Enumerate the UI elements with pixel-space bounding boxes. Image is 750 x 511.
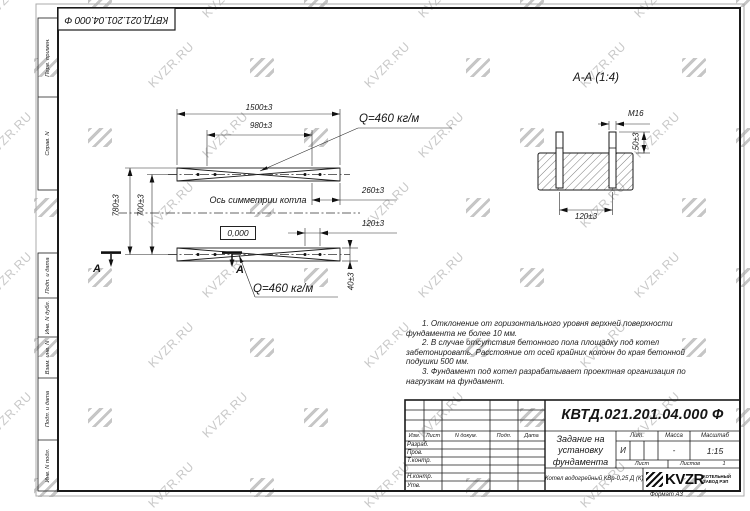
product-name: Котел водогрейный КВр-0,25 Д (К) bbox=[545, 476, 643, 482]
title-line-3: фундамента bbox=[545, 457, 616, 468]
section-dim-50: 50±3 bbox=[633, 125, 642, 157]
symmetry-axis-label: Ось симметрии котла bbox=[205, 196, 311, 206]
margin-label-podp-data-2: Подп. и дата bbox=[38, 378, 58, 440]
margin-label-vzam-inv: Взам. инв. N bbox=[38, 337, 58, 378]
load-label-top: Q=460 кг/м bbox=[359, 113, 455, 126]
scale-value: 1:15 bbox=[690, 446, 740, 456]
col-header-list: Лист bbox=[424, 433, 442, 439]
note-line-3: 2. В случае отсутствия бетонного пола пл… bbox=[422, 338, 659, 347]
note-line-4: забетонировать. Расстояние от осей крайн… bbox=[406, 348, 685, 357]
kvzr-logo-sub2: ЗАВОД РЭП bbox=[703, 479, 739, 484]
plan-view-rails bbox=[177, 168, 340, 261]
center-lines bbox=[118, 175, 360, 255]
col-header-podp: Подп. bbox=[490, 433, 518, 439]
kvzr-logo-text: KVZR bbox=[665, 471, 704, 488]
dim-700: 700±3 bbox=[138, 187, 147, 223]
col-header-ndoc: N докум. bbox=[442, 433, 490, 439]
format-note: Формат А3 bbox=[650, 492, 683, 498]
section-dim-120: 120±3 bbox=[566, 213, 606, 222]
dim-120: 120±3 bbox=[352, 220, 394, 229]
margin-label-podp-data-1: Подп. и дата bbox=[38, 253, 58, 298]
title-line-2: установку bbox=[545, 445, 616, 456]
massa-header: Масса bbox=[658, 433, 690, 439]
kvzr-logo-icon bbox=[646, 472, 663, 487]
load-label-bottom: Q=460 кг/м bbox=[253, 283, 349, 296]
listov-label: Листов bbox=[668, 461, 712, 467]
list-label: Лист bbox=[616, 461, 668, 467]
scale-header: Масштаб bbox=[690, 433, 740, 439]
title-line-1: Задание на bbox=[545, 434, 616, 445]
title-block-title: Задание на установку фундамента bbox=[545, 434, 616, 468]
elevation-mark: 0,000 bbox=[220, 226, 256, 240]
anchor-bolt-dots bbox=[197, 173, 322, 256]
anchor-bolt-right bbox=[609, 132, 616, 188]
col-header-data: Дата bbox=[518, 433, 545, 439]
row-label-nkontr: Н.контр. bbox=[407, 474, 432, 480]
top-doc-number: КВТД.021.201.04.000 Ф bbox=[58, 8, 175, 30]
row-label-tkontr: Т.контр. bbox=[407, 458, 431, 464]
lit-value: И bbox=[616, 446, 630, 455]
massa-value: - bbox=[658, 446, 690, 455]
dim-1500: 1500±3 bbox=[222, 104, 296, 113]
drawing-sheet: KVZR.RUKVZR.RUKVZR.RUKVZR.RUKVZR.RUKVZR.… bbox=[0, 0, 750, 500]
section-letter-left: А bbox=[93, 263, 109, 275]
dim-780: 780±3 bbox=[113, 187, 122, 223]
thread-label-m16: М16 bbox=[628, 110, 654, 119]
margin-label-inv-podl: Инв. N подл. bbox=[38, 440, 58, 491]
kvzr-logo-subtext: КОТЕЛЬНЫЙ ЗАВОД РЭП bbox=[703, 474, 739, 485]
lit-header: Лит. bbox=[616, 433, 658, 439]
section-view bbox=[538, 132, 633, 190]
section-letter-right: А bbox=[236, 264, 252, 276]
note-line-7: нагрузкам на фундамент. bbox=[406, 377, 505, 386]
title-block-number: КВТД.021.201.04.000 Ф bbox=[545, 400, 740, 431]
section-title: А-А (1:4) bbox=[552, 72, 640, 85]
margin-label-sprav-n: Справ. N bbox=[38, 97, 58, 190]
note-line-5: подушки 500 мм. bbox=[406, 357, 469, 366]
listov-value: 1 bbox=[712, 461, 736, 467]
anchor-bolt-left bbox=[556, 132, 563, 188]
row-label-utv: Утв. bbox=[407, 483, 421, 489]
note-line-1: 1. Отклонение от горизонтального уровня … bbox=[422, 319, 673, 328]
margin-label-inv-dubl: Инв. N дубл. bbox=[38, 298, 58, 337]
dim-260: 260±3 bbox=[352, 187, 394, 196]
margin-label-perv-primen: Перв. примен. bbox=[38, 18, 58, 97]
row-label-prov: Пров. bbox=[407, 450, 423, 456]
row-label-razrab: Разраб. bbox=[407, 442, 429, 448]
concrete-pad bbox=[538, 153, 633, 190]
note-line-2: фундамента не более 10 мм. bbox=[406, 329, 517, 338]
dim-980: 980±3 bbox=[237, 122, 285, 131]
note-line-6: 3. Фундамент под котел разрабатывает про… bbox=[422, 367, 686, 376]
col-header-izm: Изм. bbox=[405, 433, 424, 439]
